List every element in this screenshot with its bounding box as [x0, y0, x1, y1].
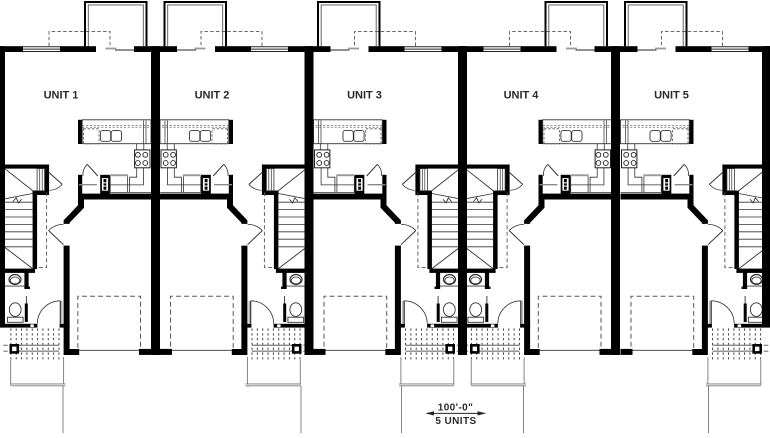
- svg-text:5 UNITS: 5 UNITS: [435, 416, 476, 427]
- svg-text:UNIT 4: UNIT 4: [504, 90, 540, 102]
- svg-text:100'-0": 100'-0": [438, 403, 474, 414]
- svg-text:UNIT 5: UNIT 5: [654, 90, 689, 102]
- svg-text:UNIT 3: UNIT 3: [347, 90, 382, 102]
- svg-text:UNIT 2: UNIT 2: [195, 90, 230, 102]
- svg-text:UNIT 1: UNIT 1: [44, 90, 79, 102]
